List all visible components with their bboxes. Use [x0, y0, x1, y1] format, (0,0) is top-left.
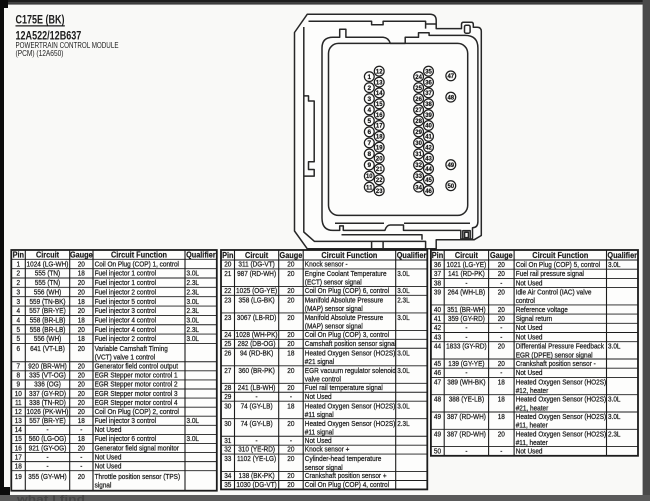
svg-text:EGR Stepper motor control 4: EGR Stepper motor control 4	[95, 398, 178, 407]
svg-text:20: 20	[287, 480, 294, 489]
svg-text:42: 42	[434, 323, 441, 332]
svg-text:16: 16	[376, 112, 383, 119]
svg-text:20: 20	[498, 359, 505, 368]
svg-text:355 (GY-WH): 355 (GY-WH)	[28, 472, 66, 481]
svg-text:34: 34	[224, 471, 231, 480]
svg-text:50: 50	[448, 183, 455, 190]
svg-text:18: 18	[287, 401, 294, 410]
svg-text:3.0L: 3.0L	[397, 313, 410, 322]
svg-text:Not Used: Not Used	[95, 452, 122, 461]
svg-text:30: 30	[224, 419, 231, 428]
svg-text:556 (WH): 556 (WH)	[34, 334, 62, 343]
svg-text:9: 9	[17, 380, 21, 389]
svg-text:20: 20	[287, 339, 294, 348]
svg-text:21: 21	[224, 269, 231, 278]
svg-text:12: 12	[376, 68, 383, 75]
svg-text:#11, heater: #11, heater	[516, 421, 549, 430]
svg-text:387 (RD-WH): 387 (RD-WH)	[447, 412, 486, 421]
svg-text:20: 20	[287, 366, 294, 375]
svg-text:6: 6	[368, 129, 372, 136]
svg-text:Crankshaft position sensor -: Crankshaft position sensor -	[516, 359, 597, 368]
svg-text:Circuit: Circuit	[455, 250, 478, 260]
svg-text:Coil On Plug (COP) 4, control: Coil On Plug (COP) 4, control	[305, 480, 390, 489]
svg-text:3.0L: 3.0L	[397, 348, 410, 357]
svg-text:1: 1	[368, 74, 372, 81]
svg-text:20: 20	[498, 305, 505, 314]
svg-text:Signal return: Signal return	[516, 314, 553, 323]
svg-text:Fuel injector 3 control: Fuel injector 3 control	[95, 416, 157, 425]
svg-text:Coil On Plug (COP) 1, control: Coil On Plug (COP) 1, control	[95, 259, 180, 268]
svg-text:20: 20	[287, 296, 294, 305]
svg-text:Not Used: Not Used	[95, 425, 122, 434]
svg-text:49: 49	[448, 162, 455, 169]
svg-text:18: 18	[15, 461, 22, 470]
svg-text:20: 20	[287, 383, 294, 392]
svg-text:30: 30	[415, 140, 422, 147]
svg-text:3.0L: 3.0L	[187, 416, 200, 425]
svg-text:signal: signal	[95, 481, 112, 490]
svg-text:33: 33	[415, 173, 422, 180]
svg-text:20: 20	[498, 288, 505, 297]
svg-text:20: 20	[78, 371, 85, 380]
svg-text:44: 44	[434, 342, 441, 351]
svg-text:(VCT) valve 1 control: (VCT) valve 1 control	[95, 353, 156, 362]
svg-text:921 (GY-OG): 921 (GY-OG)	[29, 443, 67, 452]
svg-text:20: 20	[224, 260, 231, 269]
svg-text:20: 20	[78, 287, 85, 296]
svg-text:18: 18	[78, 269, 85, 278]
svg-text:Fuel injector 2 control: Fuel injector 2 control	[95, 334, 157, 343]
svg-text:40: 40	[425, 123, 432, 130]
svg-text:4: 4	[17, 306, 21, 315]
svg-text:17: 17	[376, 123, 383, 130]
svg-text:6: 6	[17, 344, 21, 353]
svg-text:2.3L: 2.3L	[187, 306, 200, 315]
svg-text:Fuel rail temperature signal: Fuel rail temperature signal	[305, 383, 383, 392]
svg-text:560 (LG-OG): 560 (LG-OG)	[29, 434, 67, 443]
svg-text:Qualifier: Qualifier	[607, 250, 637, 260]
svg-text:558 (BR-LB): 558 (BR-LB)	[30, 316, 66, 325]
svg-text:920 (BR-WH): 920 (BR-WH)	[28, 362, 67, 371]
svg-text:310 (YE-RD): 310 (YE-RD)	[238, 445, 275, 454]
svg-text:22: 22	[376, 177, 383, 184]
svg-text:Circuit Function: Circuit Function	[532, 250, 588, 260]
svg-text:25: 25	[224, 339, 231, 348]
svg-text:141 (RD-PK): 141 (RD-PK)	[448, 269, 485, 278]
svg-text:42: 42	[425, 144, 432, 151]
svg-text:28: 28	[224, 383, 231, 392]
svg-text:5: 5	[368, 118, 372, 125]
svg-text:C175E (BK): C175E (BK)	[16, 13, 65, 27]
svg-text:Knock sensor +: Knock sensor +	[305, 445, 350, 454]
svg-text:557 (BR-YE): 557 (BR-YE)	[29, 306, 66, 315]
svg-text:1: 1	[17, 259, 21, 268]
svg-text:13: 13	[15, 416, 22, 425]
svg-text:17: 17	[15, 452, 22, 461]
svg-text:2.3L: 2.3L	[397, 296, 410, 305]
svg-text:41: 41	[425, 134, 432, 141]
svg-text:Coil On Plug (COP) 6, control: Coil On Plug (COP) 6, control	[305, 286, 390, 295]
svg-text:23: 23	[224, 296, 231, 305]
svg-text:74 (GY-LB): 74 (GY-LB)	[241, 401, 273, 410]
svg-text:3.0L: 3.0L	[397, 401, 410, 410]
svg-text:35: 35	[224, 480, 231, 489]
svg-text:11: 11	[15, 398, 22, 407]
svg-text:3067 (LB-RD): 3067 (LB-RD)	[237, 313, 277, 322]
svg-text:2.3L: 2.3L	[608, 429, 621, 438]
svg-text:Generator field control output: Generator field control output	[95, 362, 178, 371]
svg-text:46: 46	[425, 188, 432, 195]
svg-text:(PCM) (12A650): (PCM) (12A650)	[16, 49, 64, 58]
svg-text:20: 20	[498, 314, 505, 323]
svg-text:33: 33	[224, 454, 231, 463]
svg-text:3.0L: 3.0L	[187, 316, 200, 325]
svg-text:20: 20	[78, 407, 85, 416]
svg-text:1025 (OG-YE): 1025 (OG-YE)	[236, 286, 277, 295]
svg-text:15: 15	[376, 101, 383, 108]
svg-text:25: 25	[415, 85, 422, 92]
svg-text:5: 5	[17, 325, 21, 334]
svg-text:1030 (DG-VT): 1030 (DG-VT)	[236, 480, 276, 489]
svg-text:555 (TN): 555 (TN)	[35, 269, 60, 278]
svg-text:20: 20	[78, 380, 85, 389]
svg-text:351 (BR-WH): 351 (BR-WH)	[447, 305, 486, 314]
svg-text:32: 32	[224, 445, 231, 454]
svg-text:3.0L: 3.0L	[187, 297, 200, 306]
svg-text:18: 18	[78, 434, 85, 443]
svg-text:Pin: Pin	[432, 250, 443, 260]
svg-text:20: 20	[78, 472, 85, 481]
svg-text:20: 20	[78, 389, 85, 398]
svg-text:557 (BR-YE): 557 (BR-YE)	[29, 416, 66, 425]
svg-text:12: 12	[15, 407, 22, 416]
svg-text:Fuel injector 1 control: Fuel injector 1 control	[95, 269, 157, 278]
svg-text:24: 24	[224, 330, 231, 339]
svg-text:14: 14	[376, 90, 383, 97]
svg-text:#11 signal: #11 signal	[305, 410, 334, 419]
svg-text:21: 21	[376, 166, 383, 173]
svg-text:3.0L: 3.0L	[608, 342, 621, 351]
svg-text:20: 20	[376, 155, 383, 162]
svg-text:20: 20	[287, 260, 294, 269]
svg-text:22: 22	[224, 286, 231, 295]
svg-text:8: 8	[368, 151, 372, 158]
svg-text:20: 20	[287, 454, 294, 463]
svg-text:2.3L: 2.3L	[187, 287, 200, 296]
svg-text:Fuel injector 5 control: Fuel injector 5 control	[95, 297, 157, 306]
svg-text:27: 27	[224, 366, 231, 375]
svg-text:16: 16	[15, 443, 22, 452]
svg-text:388 (YE-LB): 388 (YE-LB)	[449, 395, 484, 404]
svg-text:Fuel injector 1 control: Fuel injector 1 control	[95, 278, 157, 287]
svg-text:18: 18	[78, 416, 85, 425]
svg-text:26: 26	[224, 348, 231, 357]
svg-text:336 (OG): 336 (OG)	[34, 380, 61, 389]
svg-text:30: 30	[224, 401, 231, 410]
svg-text:8: 8	[17, 371, 21, 380]
svg-text:23: 23	[376, 188, 383, 195]
svg-text:Gauge: Gauge	[280, 250, 303, 260]
svg-text:20: 20	[287, 330, 294, 339]
svg-text:3.0L: 3.0L	[608, 412, 621, 421]
svg-text:Pin: Pin	[222, 250, 233, 260]
svg-text:20: 20	[78, 278, 85, 287]
svg-text:Generator field signal monitor: Generator field signal monitor	[95, 443, 180, 452]
svg-text:Not Used: Not Used	[516, 368, 543, 377]
svg-text:94 (RD-BK): 94 (RD-BK)	[240, 348, 273, 357]
svg-text:EGR Stepper motor control 1: EGR Stepper motor control 1	[95, 371, 178, 380]
svg-text:18: 18	[498, 412, 505, 421]
svg-text:2: 2	[17, 278, 21, 287]
svg-text:74 (GY-LB): 74 (GY-LB)	[241, 419, 273, 428]
svg-text:43: 43	[434, 332, 441, 341]
svg-text:#21 signal: #21 signal	[305, 357, 335, 366]
svg-text:5: 5	[17, 334, 21, 343]
svg-text:10: 10	[15, 389, 22, 398]
svg-text:Not Used: Not Used	[516, 323, 543, 332]
svg-text:Fuel injector 4 control: Fuel injector 4 control	[95, 316, 157, 325]
svg-text:2: 2	[17, 269, 21, 278]
svg-text:Qualifier: Qualifier	[397, 250, 427, 260]
svg-text:45: 45	[434, 359, 441, 368]
svg-text:15: 15	[15, 434, 22, 443]
svg-text:7: 7	[17, 362, 21, 371]
svg-text:556 (WH): 556 (WH)	[34, 287, 62, 296]
svg-text:13: 13	[376, 79, 383, 86]
svg-text:3.0L: 3.0L	[397, 366, 410, 375]
svg-text:39: 39	[425, 112, 432, 119]
svg-text:2.3L: 2.3L	[187, 325, 200, 334]
svg-text:27: 27	[415, 107, 422, 114]
svg-text:3.0L: 3.0L	[608, 260, 621, 269]
svg-text:28: 28	[415, 118, 422, 125]
svg-text:Coil On Plug (COP) 3, control: Coil On Plug (COP) 3, control	[305, 330, 390, 339]
svg-text:#21, heater: #21, heater	[516, 403, 549, 412]
svg-text:20: 20	[498, 429, 505, 438]
svg-text:18: 18	[78, 316, 85, 325]
svg-text:1028 (WH-PK): 1028 (WH-PK)	[236, 330, 278, 339]
svg-text:43: 43	[425, 155, 432, 162]
svg-text:335 (VT-OG): 335 (VT-OG)	[29, 371, 66, 380]
svg-text:37: 37	[425, 90, 432, 97]
svg-text:20: 20	[78, 306, 85, 315]
svg-text:Knock sensor -: Knock sensor -	[305, 260, 348, 269]
svg-text:26: 26	[415, 96, 422, 103]
svg-text:41: 41	[434, 314, 441, 323]
svg-text:4: 4	[17, 316, 21, 325]
svg-text:20: 20	[78, 398, 85, 407]
svg-text:1024 (LG-WH): 1024 (LG-WH)	[27, 259, 69, 268]
svg-text:#12, heater: #12, heater	[516, 386, 549, 395]
svg-text:3.0L: 3.0L	[187, 269, 200, 278]
svg-text:Reference voltage: Reference voltage	[516, 305, 568, 314]
svg-text:20: 20	[287, 286, 294, 295]
svg-text:Gauge: Gauge	[490, 250, 513, 260]
svg-text:2: 2	[368, 85, 372, 92]
svg-text:Not Used: Not Used	[305, 392, 332, 401]
svg-text:1102 (YE-LG): 1102 (YE-LG)	[237, 454, 276, 463]
svg-text:38: 38	[434, 278, 441, 287]
svg-text:Coil On Plug (COP) 2, control: Coil On Plug (COP) 2, control	[95, 407, 180, 416]
svg-text:3.0L: 3.0L	[187, 434, 200, 443]
svg-text:282 (DB-OG): 282 (DB-OG)	[238, 339, 276, 348]
svg-text:Fuel injector 2 control: Fuel injector 2 control	[95, 287, 157, 296]
svg-text:359 (GY-RD): 359 (GY-RD)	[448, 314, 485, 323]
svg-text:20: 20	[78, 344, 85, 353]
svg-text:19: 19	[376, 144, 383, 151]
svg-text:EGR Stepper motor control 3: EGR Stepper motor control 3	[95, 389, 178, 398]
svg-text:20: 20	[498, 269, 505, 278]
svg-text:31: 31	[415, 151, 422, 158]
svg-text:Fuel injector 3 control: Fuel injector 3 control	[95, 306, 157, 315]
svg-text:49: 49	[434, 412, 441, 421]
svg-text:20: 20	[287, 419, 294, 428]
svg-text:46: 46	[434, 368, 441, 377]
svg-text:20: 20	[78, 325, 85, 334]
svg-text:Circuit Function: Circuit Function	[321, 250, 377, 260]
svg-text:20: 20	[498, 260, 505, 269]
svg-text:24: 24	[415, 74, 422, 81]
svg-text:20: 20	[498, 342, 505, 351]
svg-text:45: 45	[425, 177, 432, 184]
svg-text:18: 18	[498, 395, 505, 404]
svg-text:1021 (LG-YE): 1021 (LG-YE)	[447, 260, 487, 269]
svg-text:Fuel rail pressure signal: Fuel rail pressure signal	[516, 269, 585, 278]
svg-text:20: 20	[78, 362, 85, 371]
svg-text:18: 18	[78, 334, 85, 343]
svg-text:Crankshaft position sensor +: Crankshaft position sensor +	[305, 471, 387, 480]
svg-text:360 (BR-PK): 360 (BR-PK)	[238, 366, 275, 375]
svg-text:558 (BR-LB): 558 (BR-LB)	[30, 325, 66, 334]
svg-text:389 (WH-BK): 389 (WH-BK)	[447, 377, 485, 386]
svg-text:35: 35	[425, 68, 432, 75]
svg-text:49: 49	[434, 429, 441, 438]
svg-text:387 (RD-WH): 387 (RD-WH)	[447, 429, 486, 438]
svg-text:3.0L: 3.0L	[608, 395, 621, 404]
svg-text:32: 32	[415, 162, 422, 169]
svg-text:3.0L: 3.0L	[187, 334, 200, 343]
svg-text:18: 18	[78, 297, 85, 306]
svg-text:Camshaft position sensor signa: Camshaft position sensor signal	[305, 339, 397, 348]
svg-text:3: 3	[368, 96, 372, 103]
svg-text:18: 18	[498, 377, 505, 386]
svg-text:311 (DG-VT): 311 (DG-VT)	[238, 260, 274, 269]
svg-text:(MAP) sensor signal: (MAP) sensor signal	[305, 304, 363, 313]
svg-text:4: 4	[368, 107, 372, 114]
svg-text:2.3L: 2.3L	[397, 419, 410, 428]
svg-text:what I find: what I find	[16, 495, 85, 501]
svg-text:139 (GY-YE): 139 (GY-YE)	[448, 359, 484, 368]
svg-text:7: 7	[368, 140, 372, 147]
svg-text:38: 38	[425, 101, 432, 108]
svg-text:36: 36	[434, 260, 441, 269]
svg-text:47: 47	[434, 377, 441, 386]
svg-text:19: 19	[15, 472, 22, 481]
svg-text:47: 47	[448, 73, 455, 80]
svg-text:Not Used: Not Used	[516, 447, 543, 456]
svg-text:20: 20	[287, 269, 294, 278]
svg-text:39: 39	[434, 288, 441, 297]
svg-text:555 (TN): 555 (TN)	[35, 278, 60, 287]
svg-text:Coil On Plug (COP) 5, control: Coil On Plug (COP) 5, control	[516, 260, 601, 269]
svg-text:EGR Stepper motor control 2: EGR Stepper motor control 2	[95, 380, 178, 389]
svg-text:338 (TN-RD): 338 (TN-RD)	[29, 398, 66, 407]
svg-text:18: 18	[287, 348, 294, 357]
svg-text:37: 37	[434, 269, 441, 278]
svg-text:20: 20	[287, 313, 294, 322]
svg-text:3: 3	[17, 297, 21, 306]
svg-text:31: 31	[224, 436, 231, 445]
svg-text:Circuit: Circuit	[245, 250, 268, 260]
svg-text:20: 20	[287, 471, 294, 480]
svg-text:987 (RD-WH): 987 (RD-WH)	[237, 269, 276, 278]
svg-text:1833 (GY-RD): 1833 (GY-RD)	[446, 342, 487, 351]
svg-text:337 (GY-RD): 337 (GY-RD)	[29, 389, 66, 398]
svg-text:264 (WH-LB): 264 (WH-LB)	[448, 288, 486, 297]
svg-text:358 (LG-BK): 358 (LG-BK)	[239, 296, 275, 305]
svg-text:44: 44	[425, 166, 432, 173]
svg-text:36: 36	[425, 79, 432, 86]
svg-text:Not Used: Not Used	[95, 461, 122, 470]
svg-text:641 (VT-LB): 641 (VT-LB)	[30, 344, 65, 353]
svg-text:10: 10	[366, 173, 373, 180]
svg-text:48: 48	[434, 395, 441, 404]
svg-text:48: 48	[448, 94, 455, 101]
svg-text:2.3L: 2.3L	[187, 278, 200, 287]
svg-text:18: 18	[376, 134, 383, 141]
svg-text:138 (BK-PK): 138 (BK-PK)	[239, 471, 275, 480]
svg-text:241 (LB-WH): 241 (LB-WH)	[238, 383, 276, 392]
svg-text:29: 29	[415, 129, 422, 136]
svg-text:1026 (PK-WH): 1026 (PK-WH)	[27, 407, 69, 416]
svg-text:14: 14	[15, 425, 22, 434]
svg-text:9: 9	[368, 162, 372, 169]
svg-text:29: 29	[224, 392, 231, 401]
svg-text:3.0L: 3.0L	[397, 269, 410, 278]
svg-text:Not Used: Not Used	[516, 278, 543, 287]
svg-text:3: 3	[17, 287, 21, 296]
svg-text:20: 20	[287, 445, 294, 454]
svg-text:Fuel injector 4 control: Fuel injector 4 control	[95, 325, 157, 334]
svg-text:50: 50	[434, 447, 441, 456]
svg-text:20: 20	[78, 259, 85, 268]
svg-text:Fuel injector 6 control: Fuel injector 6 control	[95, 434, 157, 443]
svg-text:Not Used: Not Used	[516, 332, 543, 341]
svg-text:3.0L: 3.0L	[397, 286, 410, 295]
svg-text:34: 34	[415, 184, 422, 191]
svg-text:Not Used: Not Used	[305, 436, 332, 445]
svg-text:40: 40	[434, 305, 441, 314]
svg-text:11: 11	[366, 184, 373, 191]
svg-text:559 (TN-BK): 559 (TN-BK)	[29, 297, 65, 306]
svg-text:23: 23	[224, 313, 231, 322]
svg-text:20: 20	[78, 443, 85, 452]
